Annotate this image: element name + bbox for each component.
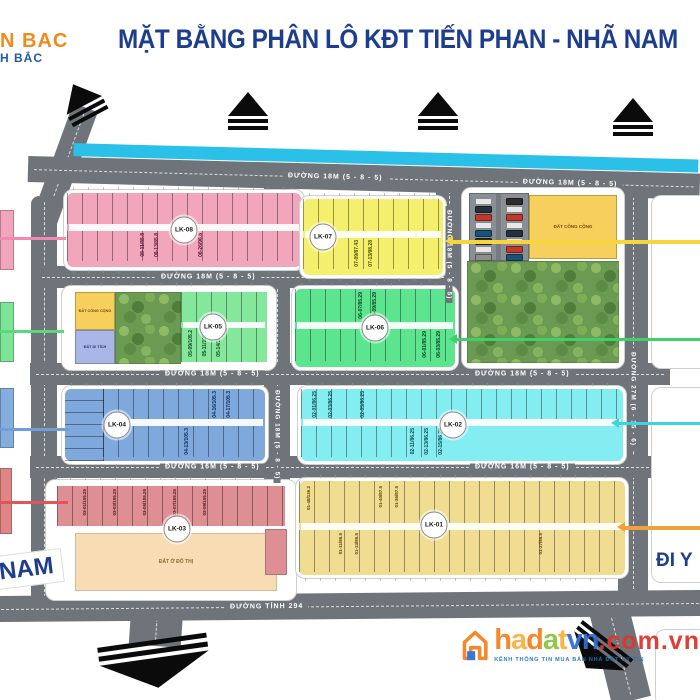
north-arrow-icon <box>55 75 108 127</box>
block-lk07: 07-09/87.43 07-13/98.28 LK-07 <box>300 196 446 278</box>
plot-label: 03-01/105.25 <box>83 489 88 516</box>
plot-label: 01-11/85.5 <box>339 533 344 554</box>
plot-label: 03-07/105.25 <box>173 489 178 516</box>
parked-car <box>506 198 523 205</box>
plot-label: 03-03/105.25 <box>113 489 118 516</box>
parked-car <box>475 254 492 261</box>
plot-label: 02-13/86.25 <box>425 428 430 455</box>
road-label: ĐƯỜNG 18M (5 - 8 - 5) <box>160 371 265 378</box>
block-lk08: 08-11/85.8 08-13/85.8 08-26/96.8 LK-08 <box>64 190 304 270</box>
plot-label: 04-17/105.3 <box>227 391 232 418</box>
plot-row <box>299 530 625 572</box>
south-arrow-icon <box>97 633 213 696</box>
parked-car <box>475 198 492 205</box>
plot-label: 01-40/87.5 <box>379 486 384 508</box>
plot-label: 08-26/96.8 <box>199 233 204 257</box>
road-label: ĐƯỜNG 18M (5 - 8 - 5) <box>518 178 623 188</box>
road-label: ĐƯỜNG 18M (5 - 8 - 5) <box>446 206 453 303</box>
plot-label: 07-13/98.28 <box>369 240 374 267</box>
canal-water <box>73 143 698 172</box>
plot-label: ĐẤT Ở ĐÔ THỊ <box>159 559 193 565</box>
parked-car <box>506 230 523 237</box>
north-arrow-icon <box>613 98 653 136</box>
road-label: ĐƯỜNG 18M (5 - 8 - 5) <box>274 386 281 483</box>
page-title: MẶT BẰNG PHÂN LÔ KĐT TIẾN PHAN - NHÃ NAM <box>118 24 622 55</box>
site-plan-map: N BAC H BẮC MẶT BẰNG PHÂN LÔ KĐT TIẾN PH… <box>0 0 700 700</box>
plot-label: 04-16/105.3 <box>213 391 218 418</box>
company-logo: N BAC H BẮC <box>0 30 68 65</box>
block-lk01: 01-48/136.2 01-40/87.5 01-36/87.5 01-11/… <box>296 478 628 578</box>
plot-label: 04-13/105.3 <box>185 428 190 455</box>
house-icon <box>460 626 490 664</box>
plot-row <box>103 389 265 419</box>
park-trees <box>115 292 181 364</box>
road-label: ĐƯỜNG 16M (5 - 8 - 5) <box>470 464 575 471</box>
park-trees <box>467 261 619 363</box>
block-lk04: 04-16/105.3 04-17/105.3 04-13/105.3 LK-0… <box>62 386 268 464</box>
block-badge: LK-07 <box>310 224 337 251</box>
block-badge: LK-04 <box>104 412 131 439</box>
block-badge: LK-08 <box>171 217 198 244</box>
direction-label-east: ĐI Y <box>656 550 693 572</box>
plot-label: 08-11/85.8 <box>141 233 146 257</box>
north-arrow-icon <box>228 92 268 130</box>
parked-car <box>475 206 492 213</box>
block-badge: LK-06 <box>362 315 389 342</box>
watermark-tagline: KÊNH THÔNG TIN MUA BÁN NHÀ ĐẤT UY TÍN <box>494 657 700 663</box>
block-badge: LK-01 <box>421 512 448 539</box>
parked-car <box>475 222 492 229</box>
parked-car <box>506 222 523 229</box>
public-land-plot: ĐẤT CÔNG CỘNG <box>75 292 115 330</box>
road-label: ĐƯỜNG 18M (5 - 8 - 5) <box>470 371 575 378</box>
logo-line2: H BẮC <box>0 52 68 65</box>
plot-label: 05-09/105.2 <box>189 330 194 357</box>
logo-line1: N BAC <box>0 30 68 52</box>
road-label: ĐƯỜNG 18M (5 - 8 - 5) <box>156 274 261 281</box>
parked-car <box>506 254 523 261</box>
parcel-public-park: ĐẤT CÔNG CỘNG <box>462 188 624 368</box>
block-lk06: 06-07/85.29 06-09/85.29 06-01/85.29 06-0… <box>292 286 458 370</box>
plot-label: 02-03/86.25 <box>329 391 334 418</box>
watermark: hadatvn.com.vn KÊNH THÔNG TIN MUA BÁN NH… <box>460 626 700 664</box>
plot-row <box>299 481 625 523</box>
plot-label: ĐẤT CÔNG CỘNG <box>554 224 593 229</box>
block-lk02: 02-01/86.25 02-03/86.25 02-05/86.25 02-1… <box>298 386 626 464</box>
plot-label: 06-03/85.29 <box>437 331 442 358</box>
plot-label: 02-11/86.25 <box>411 428 416 454</box>
block-lk05: ĐẤT CÔNG CỘNG ĐẤT DI TÍCH 05-09/105.2 05… <box>62 286 276 370</box>
plot-label: 06-01/85.29 <box>423 331 428 358</box>
watermark-brand: hadatvn.com.vn <box>494 626 700 655</box>
monument-land-plot: ĐẤT DI TÍCH <box>75 330 115 364</box>
road-label: ĐƯỜNG 18M (5 - 8 - 5) <box>283 172 388 182</box>
plot-label: 03-09/105.25 <box>203 489 208 516</box>
plot-label: 03-05/105.25 <box>143 489 148 516</box>
north-arrow-icon <box>418 92 458 130</box>
block-alley <box>301 523 623 530</box>
plot-label: 02-01/86.25 <box>313 391 318 418</box>
block-badge: LK-02 <box>440 412 467 439</box>
block-lk03: 03-01/105.25 03-03/105.25 03-05/105.25 0… <box>46 480 296 600</box>
plot-label: 08-13/85.8 <box>155 233 160 257</box>
road-label: ĐƯỜNG 27M (6 - 15 - 6) <box>630 348 637 450</box>
block-badge: LK-05 <box>200 314 227 341</box>
parked-car <box>475 230 492 237</box>
parked-car <box>475 214 492 221</box>
plot-label: 01-36/87.5 <box>395 486 400 508</box>
parked-car <box>506 214 523 221</box>
legend-swatch-pink <box>0 210 14 270</box>
plot-label: 01-27/85.5 <box>539 533 544 555</box>
parking-lot <box>469 193 529 261</box>
plot-label: ĐẤT DI TÍCH <box>84 345 107 350</box>
parked-car <box>506 206 523 213</box>
plot-label: ĐẤT CÔNG CỘNG <box>79 309 112 314</box>
plot-label: 07-09/87.43 <box>355 240 360 267</box>
plot-strip <box>265 529 287 575</box>
plot-label: 06-07/85.29 <box>359 292 364 319</box>
road-label: ĐƯỜNG TỈNH 294 <box>225 603 308 611</box>
legend-swatch-blue <box>0 388 14 448</box>
plot-label: 02-05/86.25 <box>361 391 366 418</box>
plot-label: 01-48/136.2 <box>307 486 312 510</box>
parked-car <box>475 246 492 253</box>
parked-car <box>506 246 523 253</box>
public-land-plot: ĐẤT CÔNG CỘNG <box>529 195 617 259</box>
road-label: ĐƯỜNG 16M (5 - 8 - 5) <box>160 464 265 471</box>
parcel-east <box>652 196 700 368</box>
plot-label: 01-13/85.5 <box>355 533 360 555</box>
block-badge: LK-03 <box>164 516 191 543</box>
plot-column <box>65 389 104 461</box>
